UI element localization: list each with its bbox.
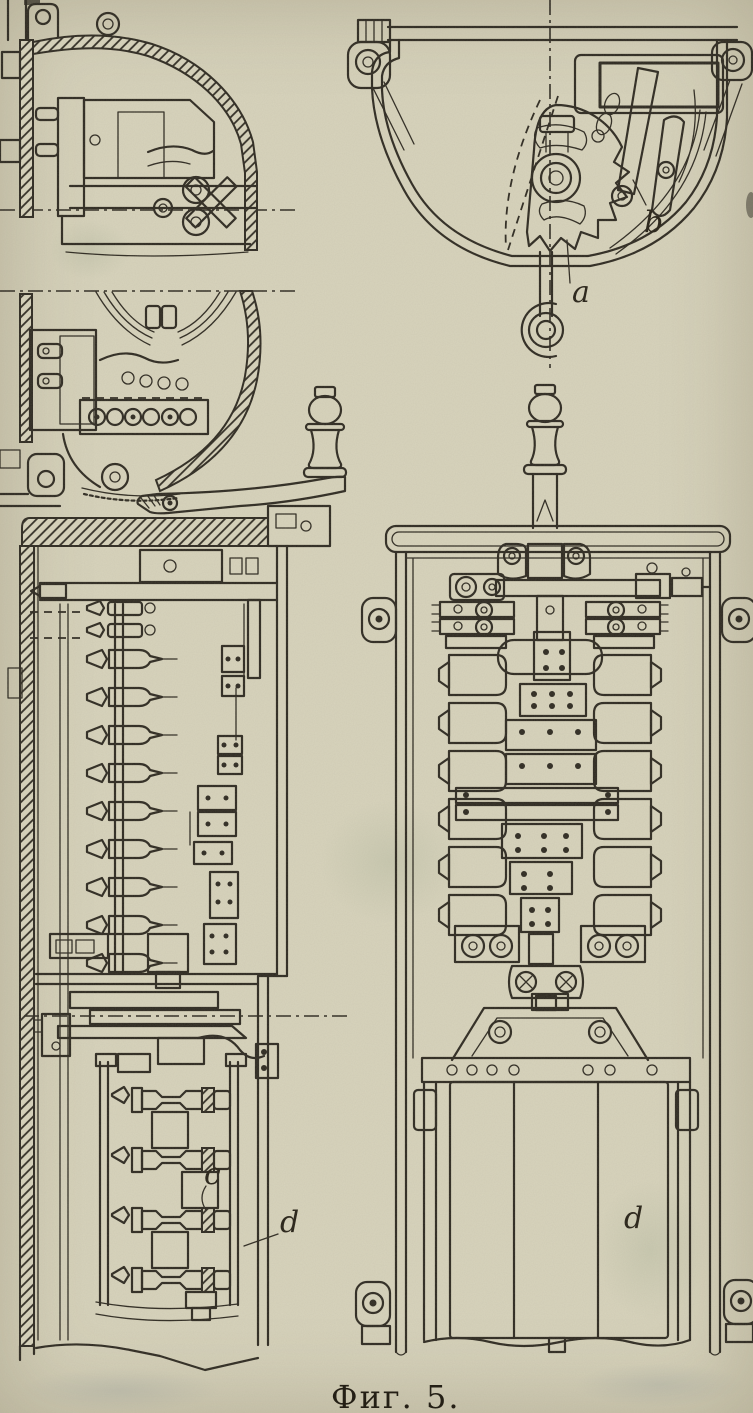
figure-5-engraving: a b [0, 0, 753, 1413]
scanned-book-page: a b [0, 0, 753, 1413]
paper-grain [0, 0, 753, 1413]
figure-caption: Фиг. 5. [331, 1378, 531, 1413]
